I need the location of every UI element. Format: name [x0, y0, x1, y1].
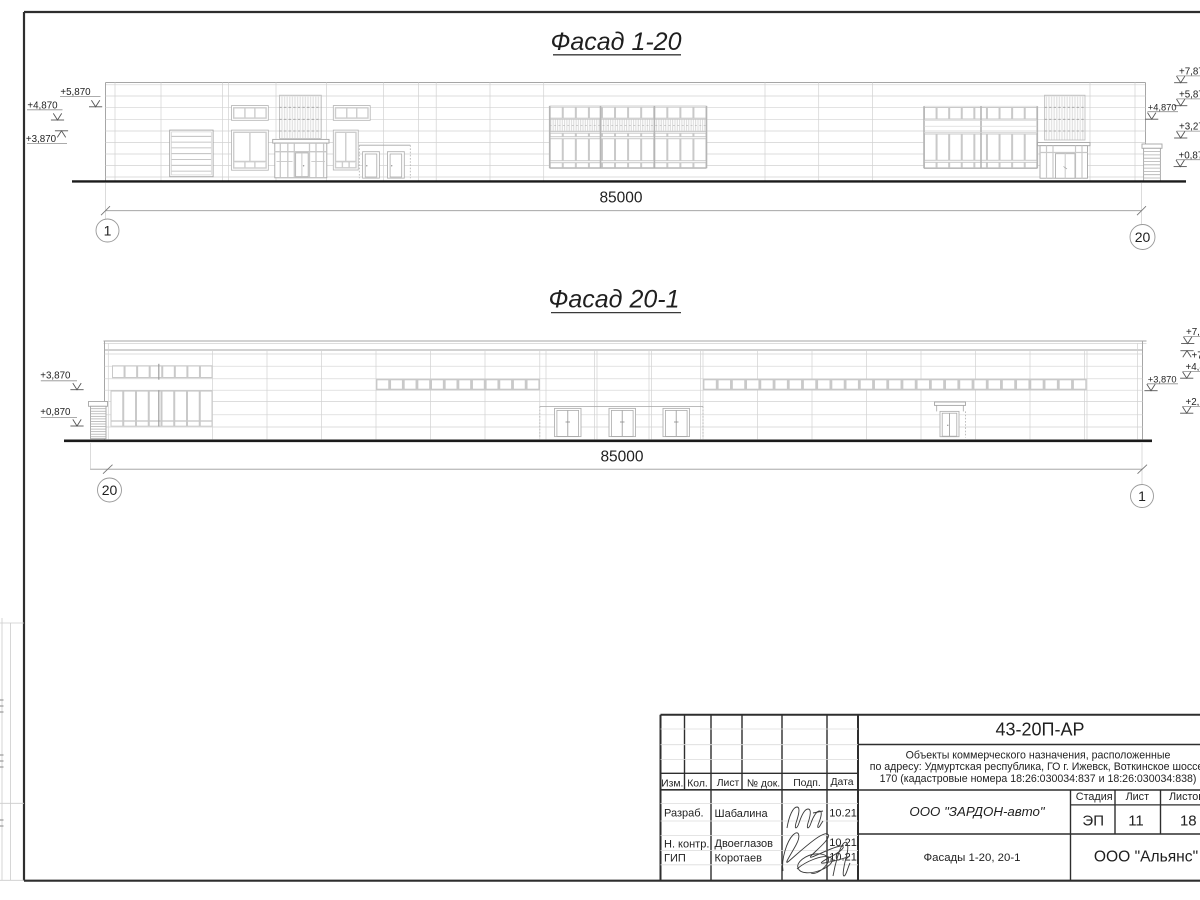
svg-text:Коротаев: Коротаев — [715, 852, 763, 864]
svg-text:+3,870: +3,870 — [40, 370, 71, 381]
svg-text:1: 1 — [104, 223, 112, 239]
svg-text:Шабалина: Шабалина — [715, 808, 769, 820]
svg-text:по адресу: Удмуртская республи: по адресу: Удмуртская республика, ГО г. … — [870, 761, 1200, 773]
svg-text:+3,870: +3,870 — [1148, 374, 1177, 384]
svg-text:85000: 85000 — [600, 449, 643, 466]
svg-text:ООО "Альянс": ООО "Альянс" — [1094, 849, 1198, 866]
svg-text:ООО "ЗАРДОН-авто": ООО "ЗАРДОН-авто" — [909, 804, 1046, 819]
svg-text:+7,: +7, — [1192, 351, 1200, 362]
svg-text:+4,870: +4,870 — [1148, 102, 1177, 112]
svg-text:Двоеглазов: Двоеглазов — [715, 838, 774, 850]
svg-text:18: 18 — [1180, 813, 1197, 830]
svg-text:Лист: Лист — [717, 778, 740, 789]
svg-text:+0,870: +0,870 — [40, 407, 71, 418]
svg-text:170 (кадастровые номера 18:26:: 170 (кадастровые номера 18:26:030034:837… — [880, 773, 1197, 785]
svg-text:Дата: Дата — [830, 777, 853, 788]
svg-text:Кол.: Кол. — [687, 778, 708, 789]
svg-text:Фасад 20-1: Фасад 20-1 — [549, 286, 680, 314]
svg-text:№ док.: № док. — [747, 778, 780, 789]
svg-text:Лист: Лист — [1126, 791, 1150, 803]
svg-text:Подп.: Подп. — [793, 778, 821, 789]
svg-text:Н. контр.: Н. контр. — [664, 838, 709, 850]
svg-text:11: 11 — [1128, 813, 1144, 830]
svg-text:Изм.: Изм. — [661, 778, 683, 789]
svg-text:43-20П-АР: 43-20П-АР — [996, 720, 1085, 740]
svg-text:20: 20 — [1135, 229, 1151, 245]
svg-text:85000: 85000 — [599, 190, 642, 207]
svg-text:Листов: Листов — [1169, 791, 1200, 803]
svg-text:Разраб.: Разраб. — [664, 807, 704, 819]
svg-text:Объекты коммерческого назначен: Объекты коммерческого назначения, распол… — [906, 749, 1171, 761]
svg-text:Фасад 1-20: Фасад 1-20 — [551, 28, 682, 56]
svg-text:Фасады 1-20, 20-1: Фасады 1-20, 20-1 — [924, 852, 1021, 864]
svg-text:ГИП: ГИП — [664, 853, 686, 865]
svg-text:ЭП: ЭП — [1082, 813, 1104, 830]
svg-text:1: 1 — [1138, 488, 1146, 504]
svg-text:Стадия: Стадия — [1076, 791, 1113, 803]
svg-text:20: 20 — [102, 482, 118, 498]
svg-text:10.21: 10.21 — [829, 807, 857, 819]
